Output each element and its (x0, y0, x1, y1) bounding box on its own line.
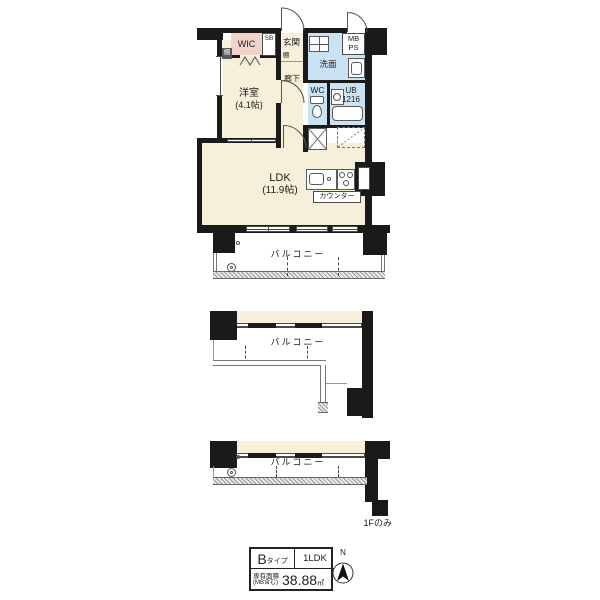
genkan-label: 玄関 (278, 38, 305, 48)
area-label-sub: (MB含む) (253, 580, 279, 587)
floor-note: 1Fのみ (340, 518, 392, 528)
pillar (363, 228, 387, 255)
mbps-label: MBPS (342, 35, 365, 52)
balcony-rail (320, 365, 326, 404)
balcony-edge (213, 340, 214, 361)
senmen-label: 洗面 (308, 60, 348, 70)
burner-icon (343, 180, 349, 186)
info-table: Bタイプ 1LDK 専有面積 (MB含む) 38.88 ㎡ (249, 547, 333, 591)
balcony-rail (213, 360, 326, 366)
pillar (372, 500, 388, 516)
bedroom-door-arc-icon (281, 80, 304, 103)
wall (365, 33, 372, 228)
upper-floor-band (220, 311, 372, 323)
hall-label: 廊下 (281, 74, 303, 83)
storage-icon (308, 128, 327, 150)
pillar (213, 228, 235, 253)
ldk-door-arc-icon (283, 125, 306, 148)
balcony-bottom-label: バルコニー (253, 457, 343, 467)
ldk-label: LDK(11.9帖) (240, 172, 320, 196)
wall (303, 28, 347, 33)
window (222, 323, 362, 328)
sb-label: SB (262, 35, 276, 42)
area-unit: ㎡ (317, 578, 324, 588)
layout-label: 1LDK (303, 553, 327, 564)
ub-label: UB1216 (337, 86, 365, 104)
pillar (347, 388, 373, 416)
area-value: 38.88 (282, 572, 317, 588)
washbasin-bowl-icon (351, 62, 362, 75)
pillar (210, 441, 237, 468)
floor-plan: WIC SB 玄関 棚 棚 洗面 MBPS 廊下 WC UB1216 洋室(4.… (0, 0, 600, 600)
wall (327, 83, 330, 125)
window-divider (251, 139, 252, 142)
wall (303, 80, 367, 83)
layout-cell: 1LDK (295, 549, 335, 569)
genkan-step-line (281, 61, 303, 62)
balcony-rail-end (318, 402, 328, 413)
wall (197, 140, 202, 233)
shelf-wic-label: 棚 (222, 49, 232, 56)
window (332, 226, 358, 232)
area-cell: 専有面積 (MB含む) 38.88 ㎡ (251, 569, 335, 591)
bathtub-icon (332, 106, 363, 121)
toilet-tank-icon (310, 96, 324, 104)
burner-icon (339, 172, 345, 178)
compass-icon (331, 559, 355, 585)
toilet-bowl-icon (312, 105, 322, 118)
partition-line (338, 257, 339, 276)
shelf-hall-label: 棚 (281, 52, 291, 59)
faucet-icon (327, 177, 331, 181)
drain-icon (230, 266, 233, 269)
type-suffix: タイプ (267, 556, 288, 566)
burner-icon (347, 172, 353, 178)
type-letter: B (257, 551, 266, 567)
entrance-door-arc-icon (281, 7, 304, 31)
wall (248, 323, 276, 328)
area-label-group: 専有面積 (MB含む) (253, 573, 279, 587)
wic-label: WIC (231, 39, 262, 49)
vent-icon (236, 455, 240, 459)
compass-north-label: N (337, 548, 349, 557)
mbps-door-arc-icon (347, 12, 367, 32)
washer-pan-icon (309, 36, 329, 52)
fridge-space (337, 127, 365, 148)
wc-label: WC (308, 86, 327, 96)
bedroom-label: 洋室(4.1帖) (222, 88, 276, 110)
window-divider (268, 226, 269, 232)
vent-icon (236, 241, 240, 245)
wic-folding-door-icon (240, 56, 260, 65)
balcony-top-label: バルコニー (253, 249, 343, 259)
upper-floor-band (220, 441, 372, 453)
balcony-middle-label: バルコニー (253, 337, 343, 347)
balcony-rail (213, 271, 385, 279)
pillar (365, 441, 378, 502)
wall (295, 323, 322, 328)
pillar (210, 311, 237, 340)
partition-line (287, 257, 288, 276)
type-cell: Bタイプ (251, 549, 295, 569)
drain-icon (230, 471, 233, 474)
window (296, 226, 328, 232)
balcony-edge (326, 383, 347, 384)
counter-label: カウンター (313, 193, 361, 201)
balcony-rail (213, 477, 367, 485)
kitchen-niche (358, 167, 370, 190)
balcony-rail (381, 255, 385, 272)
